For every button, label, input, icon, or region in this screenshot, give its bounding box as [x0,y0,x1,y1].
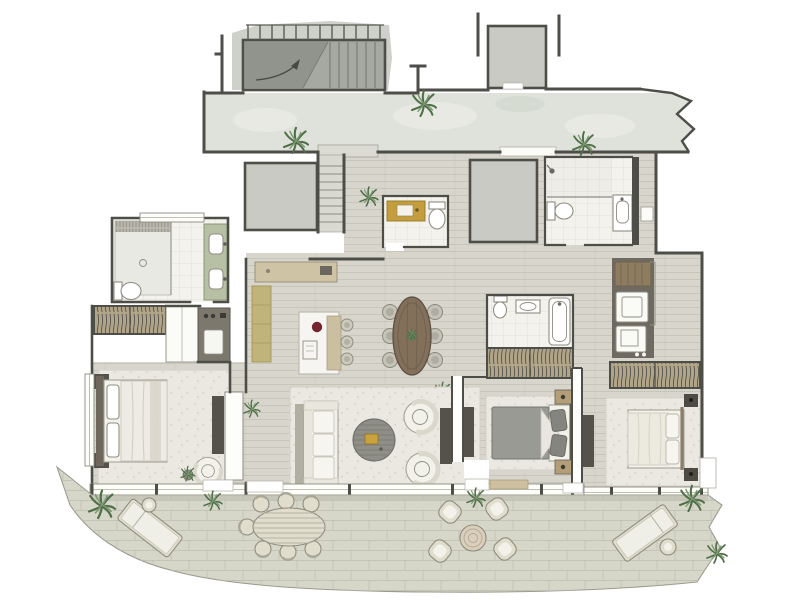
hall-threshold [500,147,556,156]
sliding-door-leaf [247,481,283,492]
pocket-door-master [225,392,243,480]
side-console [295,404,304,484]
bar-stool [341,336,353,348]
duvet [628,413,668,465]
double-vanity [204,224,228,300]
side-table-right [660,539,676,555]
tv-console [582,415,594,467]
bedroom3-wardrobe [610,362,700,388]
duvet [492,407,549,459]
vanity [516,300,540,313]
toilet [429,202,445,229]
sliding-door-leaf [203,480,233,491]
guest-bathroom [545,157,632,245]
window-band-left [85,374,94,466]
floor-plan-canvas [0,0,800,600]
pillow [666,440,679,464]
pillow [107,385,119,419]
pillow [550,434,568,457]
stairwell [232,21,392,90]
corridor [204,89,694,152]
master-bed [96,376,167,466]
pillow [550,409,568,432]
shaft-block-left [245,163,317,230]
dining-chair [428,353,443,368]
powder-room [383,196,448,251]
door-leaf-bedroom3 [700,458,716,488]
headboard [96,376,104,466]
ensuite-bathroom [487,295,573,348]
floor-plan-drawing [0,0,800,600]
shaft-block-center [470,160,537,242]
sliding-door-leaf [465,479,489,490]
bed-2 [492,404,572,462]
bathtub [549,298,570,345]
bowl-icon [312,322,322,332]
cabinet [615,262,651,286]
minibar-cabinet [198,308,230,362]
tray-icon [365,434,378,444]
wall-band [572,368,582,484]
master-bathroom [112,218,228,302]
linen-closet [166,306,198,362]
round-patio-table [460,525,486,551]
dining-chair [428,305,443,320]
bed-3 [628,407,684,470]
side-table-left [142,498,156,512]
bar-stool [341,319,353,331]
utility-area [612,258,655,358]
toilet [494,296,508,318]
bar-stool [341,353,353,365]
sliding-door-leaf [563,483,583,493]
dining-table [393,297,431,375]
throw-blanket [150,381,161,461]
oval-outdoor-table [253,508,325,546]
washer [616,292,648,322]
wall-band [452,376,463,462]
coffee-table [353,419,395,461]
toilet [114,282,141,300]
wall-shadow [92,495,708,500]
bedroom2-wardrobe [487,348,573,378]
storage-room-door [503,83,523,89]
duct-box [641,207,653,221]
powder-door-gap [386,243,404,251]
master-wardrobe [94,306,166,334]
dryer [616,326,646,352]
tv-console [212,396,224,454]
wood-threshold [490,480,528,489]
vanity [613,195,632,231]
toilet [547,202,573,220]
sofa [304,401,338,487]
walk-in-shower [115,221,171,295]
media-console [440,408,452,464]
kitchen-island [299,312,341,374]
pillow [666,414,679,438]
wall-poche [632,157,639,245]
storage-room [488,26,546,88]
master-bedroom [94,370,230,490]
entry-steps [318,155,344,232]
window-band-bathroom [140,213,204,222]
pillow [107,423,119,457]
